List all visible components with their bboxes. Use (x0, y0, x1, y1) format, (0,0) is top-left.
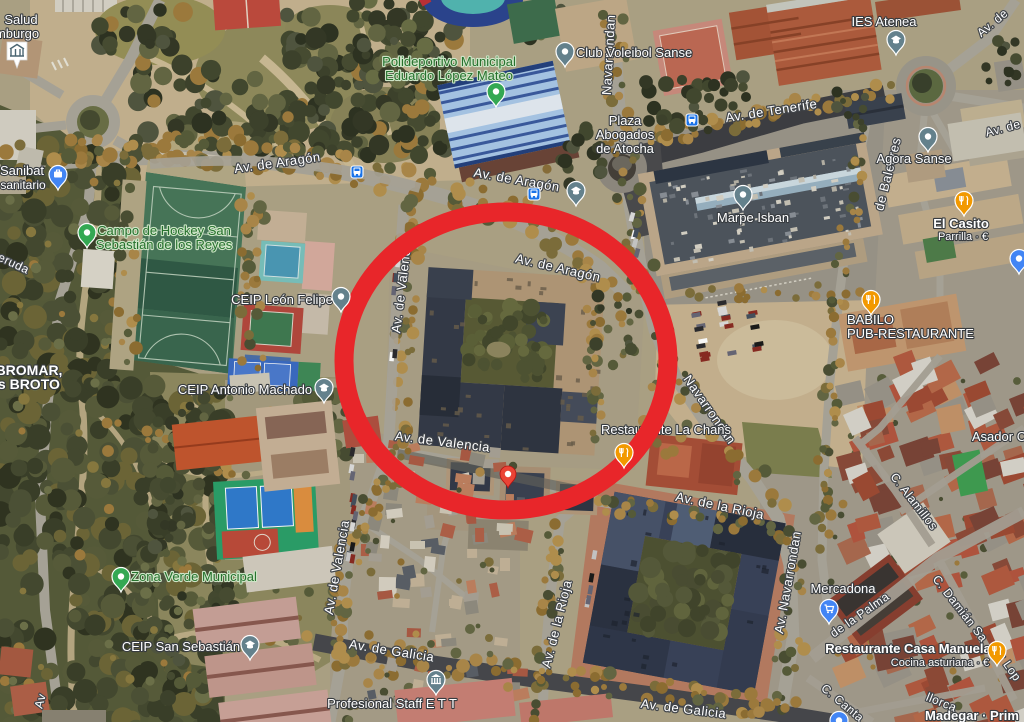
svg-text:Mercadona: Mercadona (810, 581, 876, 596)
svg-text:PUB-RESTAURANTE: PUB-RESTAURANTE (847, 326, 974, 341)
svg-text:Restaurante Casa Manuela: Restaurante Casa Manuela (825, 641, 991, 656)
svg-text:Restaurante La Chans: Restaurante La Chans (601, 422, 732, 437)
svg-text:Parrilla · €: Parrilla · € (938, 231, 988, 243)
svg-text:Campo de Hockey San: Campo de Hockey San (97, 223, 231, 238)
svg-text:Asador C: Asador C (972, 429, 1024, 444)
svg-text:Club Voleibol Sanse: Club Voleibol Sanse (576, 45, 692, 60)
svg-text:Madegar · Prim: Madegar · Prim (925, 708, 1019, 722)
svg-text:El Casito: El Casito (933, 216, 989, 231)
svg-text:Sanibat: Sanibat (0, 163, 44, 178)
svg-text:Cocina asturiana · €: Cocina asturiana · € (891, 657, 989, 669)
svg-text:Marpe Isban: Marpe Isban (717, 210, 789, 225)
svg-text:Agora Sanse: Agora Sanse (876, 151, 951, 166)
svg-text:as BROTO: as BROTO (0, 376, 60, 392)
svg-text:Zona Verde Municipal: Zona Verde Municipal (131, 569, 257, 584)
svg-text:Sebastián de los Reyes: Sebastián de los Reyes (96, 237, 233, 252)
svg-text:Eduardo López Mateo: Eduardo López Mateo (385, 68, 513, 83)
svg-text:CEIP San Sebastián: CEIP San Sebastián (122, 639, 240, 654)
svg-text:Polideportivo Municipal: Polideportivo Municipal (382, 54, 516, 69)
svg-text:de Atocha: de Atocha (596, 141, 655, 156)
svg-text:IES Atenea: IES Atenea (851, 14, 917, 29)
svg-text:CEIP Antonio Machado: CEIP Antonio Machado (178, 382, 312, 397)
svg-text:Salud: Salud (4, 12, 37, 27)
svg-text:Plaza: Plaza (609, 113, 642, 128)
svg-text:Profesional Staff E T T: Profesional Staff E T T (327, 696, 457, 711)
svg-text:l sanitario: l sanitario (0, 178, 46, 192)
svg-text:Abogados: Abogados (596, 127, 655, 142)
svg-text:CEIP León Felipe: CEIP León Felipe (231, 292, 333, 307)
svg-text:mburgo: mburgo (0, 26, 39, 41)
